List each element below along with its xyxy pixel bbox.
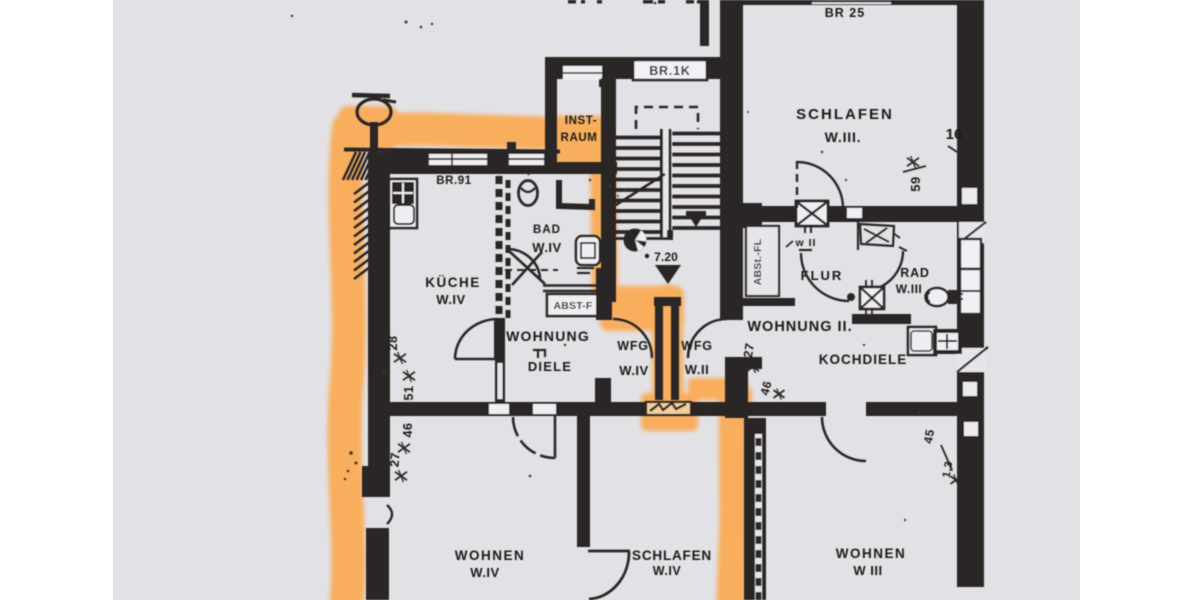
svg-text:W.IV: W.IV: [436, 292, 465, 307]
svg-text:W.IV: W.IV: [470, 565, 499, 580]
svg-text:ABST-F: ABST-F: [553, 300, 593, 312]
svg-text:WFG: WFG: [617, 339, 649, 353]
svg-text:W.III.: W.III.: [825, 129, 862, 145]
svg-text:WOHNEN: WOHNEN: [455, 548, 526, 563]
svg-text:59: 59: [908, 176, 923, 191]
svg-text:45: 45: [921, 428, 937, 445]
svg-text:SCHLAFEN: SCHLAFEN: [796, 106, 894, 123]
svg-text:w II: w II: [795, 237, 817, 249]
svg-text:SCHLAFEN: SCHLAFEN: [632, 548, 712, 563]
svg-text:7.20: 7.20: [654, 250, 678, 264]
svg-text:WOHNUNG: WOHNUNG: [506, 328, 590, 344]
svg-text:W III: W III: [853, 563, 882, 578]
svg-text:27: 27: [741, 342, 757, 359]
svg-text:W.IV: W.IV: [619, 363, 648, 378]
svg-text:BAD: BAD: [533, 224, 561, 236]
svg-text:ABSt.-FL: ABSt.-FL: [752, 238, 764, 285]
svg-text:WFG: WFG: [681, 339, 713, 353]
svg-text:W.IV: W.IV: [653, 564, 682, 578]
svg-text:W.III: W.III: [896, 282, 923, 296]
svg-text:28: 28: [386, 336, 400, 351]
svg-text:W.II: W.II: [685, 362, 709, 377]
svg-text:16: 16: [946, 126, 963, 143]
svg-text:WOHNUNG II.: WOHNUNG II.: [747, 319, 852, 335]
svg-text:W.IV: W.IV: [532, 240, 561, 255]
svg-text:KÜCHE: KÜCHE: [425, 275, 481, 290]
svg-text:27: 27: [387, 452, 402, 468]
svg-text:DIELE: DIELE: [528, 359, 572, 374]
svg-text:BR.1K: BR.1K: [649, 64, 691, 78]
svg-text:46: 46: [401, 423, 415, 438]
svg-text:RAD: RAD: [900, 266, 929, 280]
svg-text:BR 25: BR 25: [825, 6, 865, 20]
svg-text:RAUM: RAUM: [561, 132, 598, 144]
svg-text:BR.91: BR.91: [436, 175, 472, 187]
svg-text:51: 51: [402, 386, 416, 401]
svg-text:INST-: INST-: [565, 115, 597, 127]
svg-text:WOHNEN: WOHNEN: [836, 546, 907, 561]
svg-text:KOCHDIELE: KOCHDIELE: [819, 352, 908, 367]
